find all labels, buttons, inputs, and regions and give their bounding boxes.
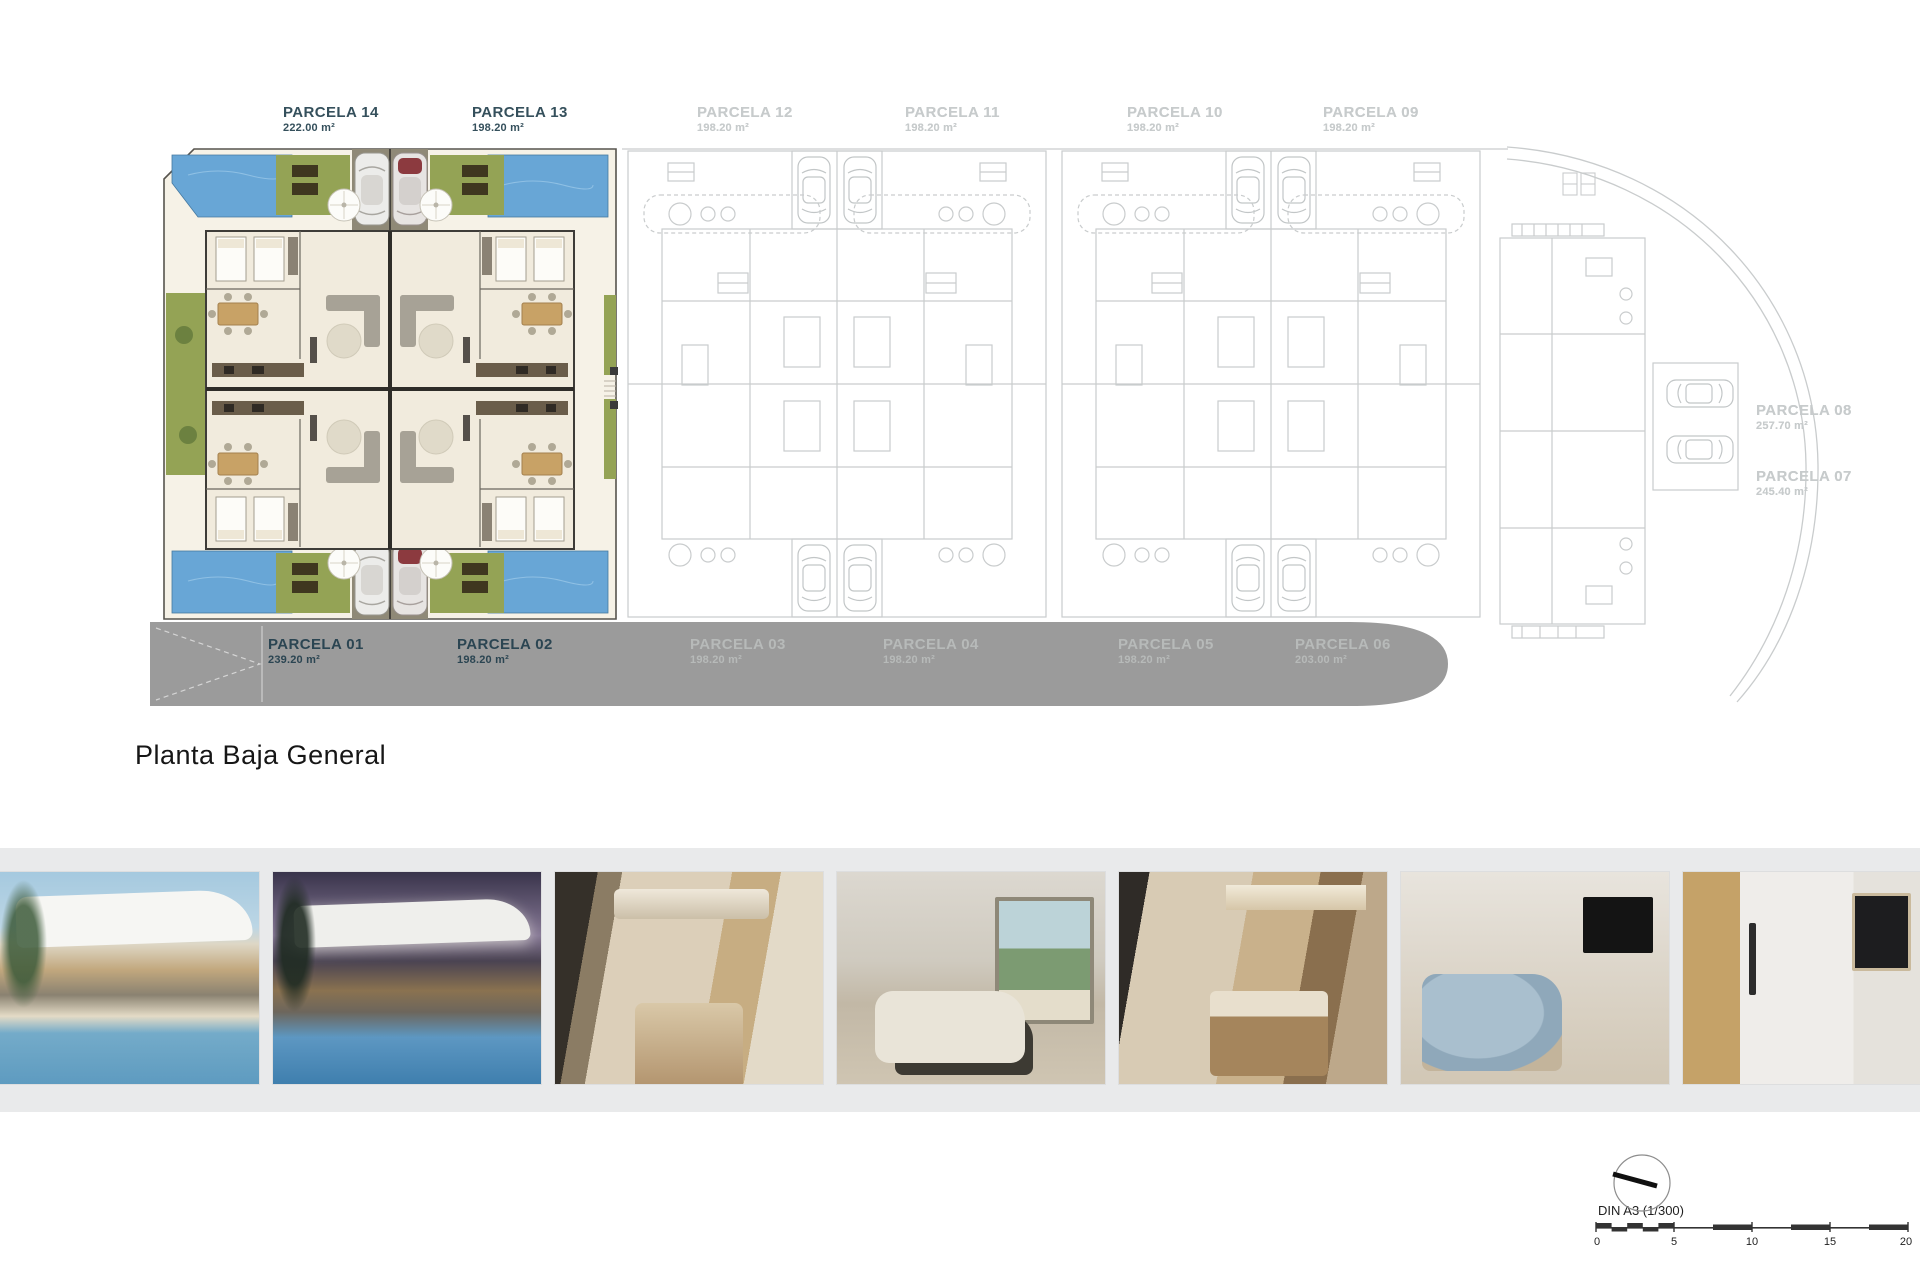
brochure-page: { "page": { "title": "Planta Baja Genera…	[0, 0, 1920, 1280]
scale-tick-5: 5	[1671, 1236, 1677, 1248]
scale-tick-10: 10	[1746, 1236, 1758, 1248]
photo-bathroom	[1683, 872, 1920, 1084]
photo-villa-exterior-day	[0, 872, 259, 1084]
parasol-icon	[420, 547, 452, 579]
parcel-label-08: PARCELA 08 257.70 m²	[1756, 402, 1852, 433]
photo-living-room	[837, 872, 1105, 1084]
parcel-area: 198.20 m²	[457, 654, 553, 667]
parcel-label-02: PARCELA 02 198.20 m²	[457, 636, 553, 667]
parasol-icon	[328, 547, 360, 579]
parcel-label-04: PARCELA 04 198.20 m²	[883, 636, 979, 667]
parcel-label-03: PARCELA 03 198.20 m²	[690, 636, 786, 667]
parcel-name: PARCELA 01	[268, 636, 364, 653]
parcel-area: 203.00 m²	[1295, 654, 1391, 667]
scale-tick-0: 0	[1594, 1236, 1600, 1248]
scale-tick-15: 15	[1824, 1236, 1836, 1248]
parcel-label-13: PARCELA 13 198.20 m²	[472, 104, 568, 135]
parcel-name: PARCELA 06	[1295, 636, 1391, 653]
parcel-label-11: PARCELA 11 198.20 m²	[905, 104, 1000, 135]
photo-bedroom	[1401, 872, 1669, 1084]
scale-bar	[1596, 1222, 1908, 1232]
parcel-name: PARCELA 14	[283, 104, 379, 121]
parcel-area: 198.20 m²	[1118, 654, 1214, 667]
parcel-area: 198.20 m²	[883, 654, 979, 667]
parcel-label-07: PARCELA 07 245.40 m²	[1756, 468, 1852, 499]
scale-format-label: DIN A3 (1/300)	[1598, 1203, 1684, 1218]
parcel-label-05: PARCELA 05 198.20 m²	[1118, 636, 1214, 667]
photo-villa-exterior-dusk	[273, 872, 541, 1084]
parcel-area: 198.20 m²	[1323, 122, 1419, 135]
parcel-label-14: PARCELA 14 222.00 m²	[283, 104, 379, 135]
parcel-name: PARCELA 08	[1756, 402, 1852, 419]
parcel-label-12: PARCELA 12 198.20 m²	[697, 104, 793, 135]
parcel-area: 198.20 m²	[1127, 122, 1223, 135]
parcel-name: PARCELA 12	[697, 104, 793, 121]
ghost-parcels-block-12-11	[628, 151, 1046, 617]
parcel-name: PARCELA 09	[1323, 104, 1419, 121]
parcel-label-10: PARCELA 10 198.20 m²	[1127, 104, 1223, 135]
north-needle	[1613, 1174, 1657, 1186]
pool	[488, 551, 608, 613]
parcel-name: PARCELA 03	[690, 636, 786, 653]
parcel-area: 198.20 m²	[472, 122, 568, 135]
parcel-area: 239.20 m²	[268, 654, 364, 667]
scale-tick-20: 20	[1900, 1236, 1912, 1248]
parcel-name: PARCELA 05	[1118, 636, 1214, 653]
parcel-label-06: PARCELA 06 203.00 m²	[1295, 636, 1391, 667]
photo-kitchen-island	[1119, 872, 1387, 1084]
ghost-parcels-block-10-09	[1062, 151, 1480, 617]
parcel-area: 222.00 m²	[283, 122, 379, 135]
parcel-area: 198.20 m²	[697, 122, 793, 135]
ghost-parcels-block-08-07	[1500, 224, 1738, 638]
parcel-name: PARCELA 13	[472, 104, 568, 121]
active-parcels-block	[164, 149, 618, 619]
parcel-name: PARCELA 10	[1127, 104, 1223, 121]
photo-kitchen-dining	[555, 872, 823, 1084]
parcel-name: PARCELA 04	[883, 636, 979, 653]
parcel-area: 198.20 m²	[905, 122, 1000, 135]
parcel-name: PARCELA 07	[1756, 468, 1852, 485]
parcel-name: PARCELA 02	[457, 636, 553, 653]
parcel-label-01: PARCELA 01 239.20 m²	[268, 636, 364, 667]
parcel-area: 257.70 m²	[1756, 420, 1852, 433]
parcel-area: 245.40 m²	[1756, 486, 1852, 499]
parasol-icon	[420, 189, 452, 221]
page-title: Planta Baja General	[135, 740, 386, 771]
parasol-icon	[328, 189, 360, 221]
parcel-name: PARCELA 11	[905, 104, 1000, 121]
parcel-area: 198.20 m²	[690, 654, 786, 667]
pool	[488, 155, 608, 217]
parcel-label-09: PARCELA 09 198.20 m²	[1323, 104, 1419, 135]
pool	[172, 551, 292, 613]
